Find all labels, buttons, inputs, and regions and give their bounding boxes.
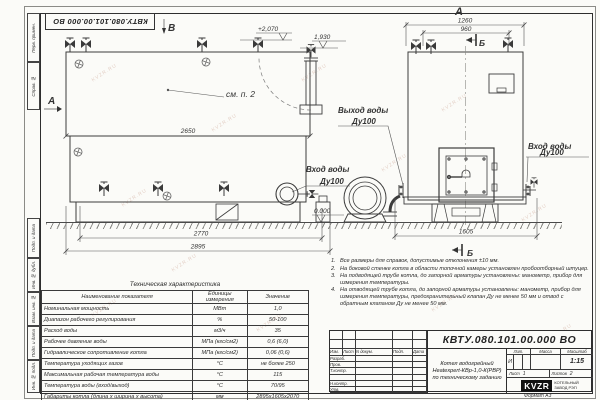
value-cell: 50-100 xyxy=(247,315,308,326)
table-row: Диапазон рабочего регулирования%50-100 xyxy=(42,315,309,326)
product-name-line3: по техническому заданию xyxy=(432,375,501,382)
note-item: 2.На боковой стенке котла в области топо… xyxy=(331,266,592,273)
drawing-texts: 2650 2770 2895 1260 960 1605 +2,070 1,93… xyxy=(47,6,571,258)
note-number: 3. xyxy=(331,273,340,286)
unit-cell: % xyxy=(193,315,248,326)
company-name-line2: ЗАВОД РЭП xyxy=(554,386,578,390)
value-cell: 70/95 xyxy=(247,381,308,392)
title-block: Изм. Лист N докум. Подп. Дата Разраб. Пр… xyxy=(329,330,592,392)
param-cell: Рабочее давление воды xyxy=(42,337,193,348)
outlet-label-line2: Ду100 xyxy=(351,117,376,126)
value-cell: 1,0 xyxy=(247,304,308,315)
value-cell: 2895х1605х2070 xyxy=(247,392,308,400)
callout-see-note-2: см. п. 2 xyxy=(226,89,255,99)
col-header-param: Наименование показателя xyxy=(42,291,193,304)
param-cell: Температура воды (вход/выход) xyxy=(42,381,193,392)
note-item: 4.На отводящей трубе котла, до запорной … xyxy=(331,287,592,307)
elevation-outlet: 1,930 xyxy=(314,34,331,41)
col-dokum: N докум. xyxy=(356,349,393,356)
value-cell: 35 xyxy=(247,326,308,337)
param-cell: Расход воды xyxy=(42,326,193,337)
inlet-label-right-line2: Ду100 xyxy=(539,148,564,157)
table-row: Максимальная рабочая температура воды°С1… xyxy=(42,370,309,381)
param-cell: Гидравлическое сопротивление котла xyxy=(42,348,193,359)
unit-cell: °С xyxy=(193,359,248,370)
dim-2650: 2650 xyxy=(180,128,196,135)
tech-table-header-row: Наименование показателя Единицы измерени… xyxy=(42,291,309,304)
notes-list: 1.Все размеры для справок, допустимые от… xyxy=(331,258,592,308)
param-cell: Номинальная мощность xyxy=(42,304,193,315)
col-list: Лист xyxy=(343,349,356,356)
outlet-label-line1: Выход воды xyxy=(338,106,388,115)
col-data: Дата xyxy=(413,349,427,356)
unit-cell: МПа (кгс/см2) xyxy=(193,337,248,348)
dim-2770: 2770 xyxy=(193,231,209,238)
sheets-value: 2 xyxy=(570,371,573,377)
note-number: 1. xyxy=(331,258,340,265)
doc-number: КВТУ.080.101.00.000 ВО xyxy=(427,331,591,349)
company-logo: KVZR КОТЕЛЬНЫЙ ЗАВОД РЭП xyxy=(506,378,593,393)
table-row: Расход водым3/ч35 xyxy=(42,326,309,337)
right-view-boiler-front xyxy=(383,38,538,226)
left-view-boiler-side xyxy=(65,38,330,222)
sheet-cell: Лист 1 xyxy=(506,370,550,378)
dim-1605: 1605 xyxy=(459,229,474,236)
param-cell: Диапазон рабочего регулирования xyxy=(42,315,193,326)
table-row: Габариты котла (длина х ширина х высота)… xyxy=(42,392,309,400)
tech-table-grid: Наименование показателя Единицы измерени… xyxy=(41,290,309,400)
col-header-value: Значение xyxy=(247,291,308,304)
dim-1260: 1260 xyxy=(458,18,473,25)
note-text: На подводящей трубе котла, до запорной а… xyxy=(340,273,592,286)
value-cell: не более 250 xyxy=(247,359,308,370)
tech-table: Техническая характеристика Наименование … xyxy=(41,281,309,400)
ground-hatch xyxy=(46,222,562,229)
value-cell: 0,06 (0,6) xyxy=(247,348,308,359)
mass-value xyxy=(531,355,561,370)
dim-2895: 2895 xyxy=(190,244,206,251)
table-row: Температура уходящих газов°Сне более 250 xyxy=(42,359,309,370)
product-name: Котел водогрейный Heatexpert-КВр-1,0-К(Р… xyxy=(427,349,506,393)
view-arrow-side: А xyxy=(47,96,55,107)
scale-value: 1:15 xyxy=(561,355,593,370)
param-cell: Габариты котла (длина х ширина х высота) xyxy=(42,392,193,400)
param-cell: Температура уходящих газов xyxy=(42,359,193,370)
view-arrow-top: В xyxy=(168,23,175,34)
inlet-label-left-line1: Вход воды xyxy=(306,165,349,174)
table-row: Рабочее давление водыМПа (кгс/см2)0,6 (6… xyxy=(42,337,309,348)
table-row: Температура воды (вход/выход)°С70/95 xyxy=(42,381,309,392)
note-item: 3.На подводящей трубе котла, до запорной… xyxy=(331,273,592,286)
tech-table-title: Техническая характеристика xyxy=(41,281,309,288)
col-podp: Подп. xyxy=(393,349,413,356)
note-number: 4. xyxy=(331,287,340,307)
sheets-label: Листов xyxy=(552,371,567,376)
section-mark-top: Б xyxy=(479,38,485,48)
table-row: Гидравлическое сопротивление котлаМПа (к… xyxy=(42,348,309,359)
table-row: Номинальная мощностьМВт1,0 xyxy=(42,304,309,315)
note-text: Все размеры для справок, допустимые откл… xyxy=(340,258,592,265)
note-number: 2. xyxy=(331,266,340,273)
format-note: Формат А3 xyxy=(524,393,551,399)
elevation-top: +2,070 xyxy=(258,26,278,33)
dim-960: 960 xyxy=(461,26,472,33)
company-name: КОТЕЛЬНЫЙ ЗАВОД РЭП xyxy=(554,381,578,390)
value-cell: 115 xyxy=(247,370,308,381)
col-izm: Изм. xyxy=(330,349,343,356)
product-name-line2: Heatexpert-КВр-1,0-К(РВР) xyxy=(432,368,501,375)
unit-cell: МПа (кгс/см2) xyxy=(193,348,248,359)
sheet-value: 1 xyxy=(523,371,526,377)
blower-fan xyxy=(344,177,386,222)
inlet-label-left-line2: Ду100 xyxy=(319,177,344,186)
drawing-sheet: KVZR.RU KVZR.RU KVZR.RU KVZR.RU KVZR.RU … xyxy=(0,0,600,400)
col-header-unit: Единицы измерения xyxy=(193,291,248,304)
sheets-cell: Листов 2 xyxy=(550,370,594,378)
unit-cell: м3/ч xyxy=(193,326,248,337)
note-text: На боковой стенке котла в области топочн… xyxy=(340,266,592,273)
kvzr-logo: KVZR xyxy=(521,380,552,392)
unit-cell: МВт xyxy=(193,304,248,315)
note-item: 1.Все размеры для справок, допустимые от… xyxy=(331,258,592,265)
sheet-label: Лист xyxy=(509,371,520,376)
role-utv: Утв. xyxy=(330,387,356,393)
unit-cell: °С xyxy=(193,370,248,381)
value-cell: 0,6 (6,0) xyxy=(247,337,308,348)
elevation-ground: 0.000 xyxy=(314,208,331,215)
view-title-front: А xyxy=(454,6,463,18)
section-mark-bottom: Б xyxy=(467,248,473,258)
param-cell: Максимальная рабочая температура воды xyxy=(42,370,193,381)
product-name-line1: Котел водогрейный xyxy=(440,361,493,368)
unit-cell: °С xyxy=(193,381,248,392)
note-text: На отводящей трубе котла, до запорной ар… xyxy=(340,287,592,307)
dimensions xyxy=(44,19,589,256)
unit-cell: мм xyxy=(193,392,248,400)
lit-value: И xyxy=(506,355,514,370)
